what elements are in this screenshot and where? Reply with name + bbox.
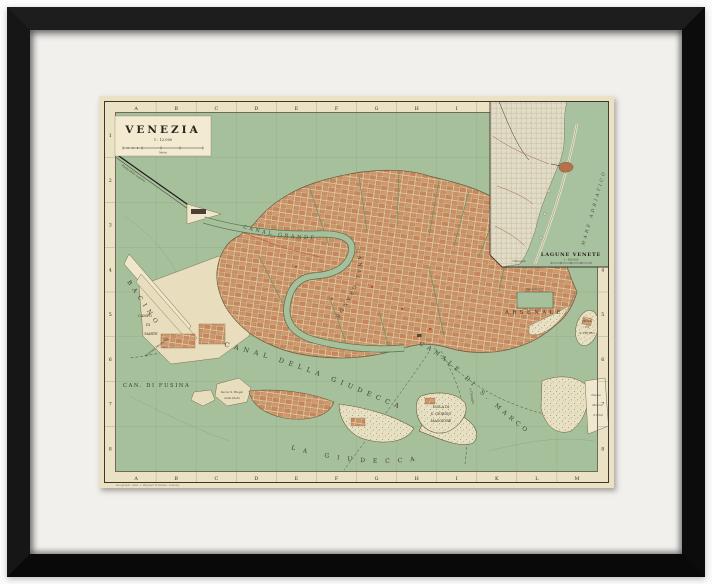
grid-label: C <box>214 476 218 482</box>
map-title: VENEZIA <box>124 124 200 136</box>
grid-label: 3 <box>108 223 111 229</box>
grid-label: D <box>254 106 258 112</box>
grid-label: 5 <box>601 312 604 318</box>
map-scale: 1 : 12.000 <box>153 138 172 142</box>
sacca-biagio-2: della Pietà <box>224 396 240 400</box>
grid-label: B <box>174 476 178 482</box>
grid-label: H <box>414 476 418 482</box>
inset-map: MARE ADRIATICO LAGUNE VENETE 1 : 500.000… <box>490 102 609 268</box>
grid-label: 2 <box>108 178 111 184</box>
grid-label: I <box>455 476 457 482</box>
grid-label: 7 <box>601 402 604 408</box>
can-di-fusina-label: CAN. DI FUSINA <box>123 383 190 389</box>
framed-map-photo: Nuova Piazza d'armi <box>0 0 712 584</box>
inset-title: LAGUNE VENETE <box>540 252 600 258</box>
nuova-piazza-darmi: Nuova Piazza d'armi <box>585 378 609 434</box>
s-pietro-1: ISOLA <box>582 319 592 323</box>
arsenale-label: ARSENALE <box>504 310 564 316</box>
grid-label: 4 <box>108 267 111 273</box>
picture-frame: Nuova Piazza d'armi <box>7 7 705 577</box>
grid-label: H <box>414 106 418 112</box>
grid-label: D <box>254 476 258 482</box>
campo-di-marte-2: DI <box>145 323 150 327</box>
campo-di-marte-3: MARTE <box>144 332 158 336</box>
grid-label: 8 <box>108 446 111 452</box>
grid-label: 5 <box>108 312 111 318</box>
grid-label: 6 <box>601 357 604 363</box>
title-cartouche: VENEZIA 1 : 12.000 Metri <box>115 116 211 156</box>
s-pietro-2: DI <box>585 325 588 329</box>
s-giorgio-3: MAGGIORE <box>430 419 451 423</box>
grid-label: E <box>294 106 298 112</box>
publisher-imprint: Geograph. Anst. v. Wagner & Debes, Leipz… <box>116 483 180 487</box>
s-giorgio-1: ISOLA DI <box>432 405 449 409</box>
grid-label: A <box>133 106 138 112</box>
grid-label: 6 <box>108 357 111 363</box>
grid-label: G <box>374 106 378 112</box>
mat-board: Nuova Piazza d'armi <box>30 30 682 554</box>
s-pietro-3: S. PIETRO <box>579 331 595 335</box>
grid-label: M <box>574 476 579 482</box>
venice-map-svg: Nuova Piazza d'armi <box>99 96 614 488</box>
grid-label: B <box>174 106 178 112</box>
grid-label: 7 <box>108 402 111 408</box>
grid-label: K <box>495 476 499 482</box>
s-giorgio-2: S. GIORGIO <box>430 412 451 416</box>
grid-label: E <box>294 476 298 482</box>
scale-unit: Metri <box>159 151 167 155</box>
grid-label: 8 <box>601 446 604 452</box>
grid-label: I <box>455 106 457 112</box>
nuova-piazza-label-3: d'armi <box>593 413 602 417</box>
grid-label: 1 <box>108 133 111 139</box>
map-paper: Nuova Piazza d'armi <box>99 96 614 488</box>
campo-di-marte-1: CAMPO <box>138 314 152 318</box>
inset-scale: 1 : 500.000 <box>563 258 578 262</box>
nuova-piazza-label-1: Nuova <box>590 393 601 397</box>
inset-chioggia-label: Chioggia <box>512 259 525 263</box>
grid-label: 4 <box>601 267 604 273</box>
grid-label: A <box>133 476 138 482</box>
darsena-label: Darsena Gr. <box>525 287 543 291</box>
sacca-biagio-1: Sacca S. Biagio <box>220 390 243 394</box>
grid-label: C <box>214 106 218 112</box>
grid-label: G <box>374 476 378 482</box>
